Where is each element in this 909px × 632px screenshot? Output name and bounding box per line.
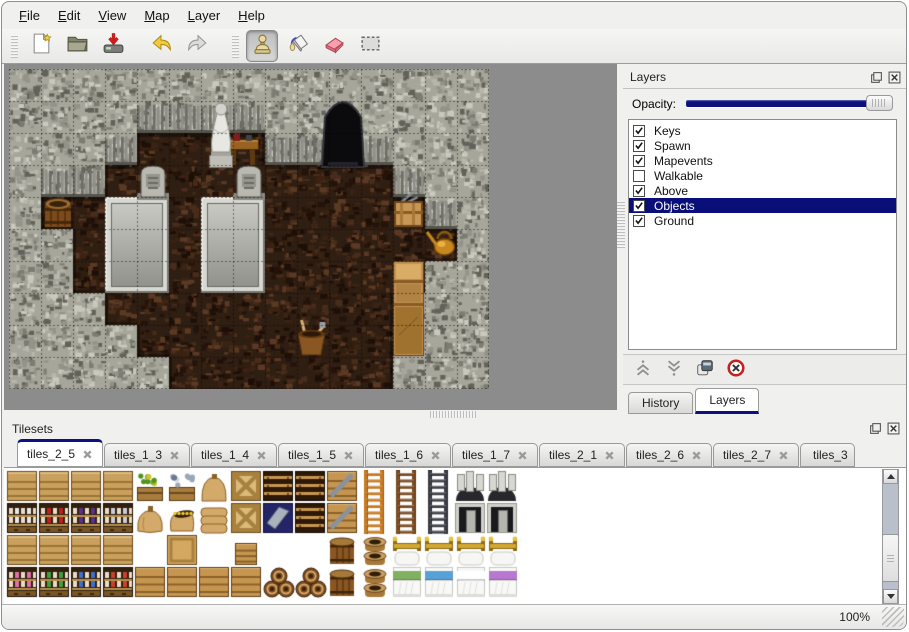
close-tab-icon[interactable] (430, 450, 441, 461)
layer-name: Mapevents (654, 154, 713, 168)
layer-name: Spawn (654, 139, 691, 153)
up-arrow-icon (887, 474, 895, 479)
duplicate-layer-icon (695, 358, 715, 381)
new-file-icon (29, 31, 54, 61)
close-tab-icon[interactable] (82, 449, 93, 460)
save-file-button[interactable] (97, 30, 129, 62)
tileset-tab-label: tiles_2_6 (636, 448, 684, 462)
open-file-icon (65, 31, 90, 61)
tileset-canvas[interactable] (6, 470, 552, 600)
tileset-tab-label: tiles_3 (813, 448, 848, 462)
tileset-tab-tiles_1_4[interactable]: tiles_1_4 (191, 443, 277, 467)
tileset-tab-label: tiles_1_4 (201, 448, 249, 462)
tileset-tab-tiles_3[interactable]: tiles_3 (800, 443, 855, 467)
move-layer-up-icon (633, 358, 653, 381)
tilesets-panel-titlebar: Tilesets (4, 418, 907, 439)
tileset-tab-tiles_2_5[interactable]: tiles_2_5 (17, 439, 103, 467)
layer-row-objects[interactable]: Objects (629, 198, 896, 213)
layer-visibility-checkbox[interactable] (633, 140, 645, 152)
horizontal-splitter[interactable] (430, 411, 476, 418)
undo-button[interactable] (145, 30, 177, 62)
close-tab-icon[interactable] (343, 450, 354, 461)
scrollbar-thumb[interactable] (882, 534, 899, 582)
layer-name: Above (654, 184, 688, 198)
layer-name: Ground (654, 214, 694, 228)
tileset-tab-tiles_1_7[interactable]: tiles_1_7 (452, 443, 538, 467)
panel-tabs: HistoryLayers (623, 386, 907, 414)
layer-row-ground[interactable]: Ground (629, 213, 896, 228)
tab-history[interactable]: History (628, 392, 693, 414)
tileset-tab-label: tiles_1_5 (288, 448, 336, 462)
undo-icon (149, 31, 174, 61)
layer-name: Objects (654, 199, 695, 213)
toolbar (2, 29, 906, 64)
close-tab-icon[interactable] (517, 450, 528, 461)
scroll-up-button[interactable] (883, 469, 898, 484)
close-tab-icon[interactable] (691, 450, 702, 461)
layer-name: Keys (654, 124, 681, 138)
close-tab-icon[interactable] (256, 450, 267, 461)
layer-visibility-checkbox[interactable] (633, 215, 645, 227)
menu-map[interactable]: Map (135, 5, 178, 26)
eraser-tool-icon (322, 31, 347, 61)
redo-icon (185, 31, 210, 61)
open-file-button[interactable] (61, 30, 93, 62)
layers-panel-titlebar: Layers (623, 66, 907, 89)
opacity-slider-handle[interactable] (866, 95, 893, 111)
close-tab-icon[interactable] (169, 450, 180, 461)
float-panel-icon[interactable] (870, 71, 883, 84)
tileset-tab-tiles_1_3[interactable]: tiles_1_3 (104, 443, 190, 467)
close-panel-icon[interactable] (887, 422, 900, 435)
tileset-tab-label: tiles_1_3 (114, 448, 162, 462)
tileset-tab-label: tiles_2_5 (27, 447, 75, 461)
redo-button[interactable] (181, 30, 213, 62)
tab-layers[interactable]: Layers (695, 388, 759, 414)
float-panel-icon[interactable] (869, 422, 882, 435)
tileset-tab-label: tiles_1_6 (375, 448, 423, 462)
stamp-tool-button[interactable] (246, 30, 278, 62)
app-window: FileEditViewMapLayerHelp Layers Opacity:… (1, 1, 907, 630)
tilesets-panel: Tilesets tiles_2_5tiles_1_3tiles_1_4tile… (4, 418, 907, 605)
new-file-button[interactable] (25, 30, 57, 62)
menu-file[interactable]: File (10, 5, 49, 26)
tileset-tab-tiles_1_6[interactable]: tiles_1_6 (365, 443, 451, 467)
eraser-tool-button[interactable] (318, 30, 350, 62)
layers-panel-title: Layers (630, 70, 870, 84)
stamp-tool-icon (250, 31, 275, 61)
tileset-scrollbar[interactable] (882, 469, 899, 604)
layer-list: KeysSpawnMapeventsWalkableAboveObjectsGr… (628, 119, 897, 350)
map-canvas[interactable] (9, 69, 489, 389)
move-layer-down-button[interactable] (662, 358, 686, 382)
tileset-tab-label: tiles_1_7 (462, 448, 510, 462)
map-viewport (4, 64, 617, 410)
close-tab-icon[interactable] (604, 450, 615, 461)
resize-grip[interactable] (882, 607, 904, 627)
menu-view[interactable]: View (89, 5, 135, 26)
layer-row-walkable[interactable]: Walkable (629, 168, 896, 183)
tileset-tab-label: tiles_2_7 (723, 448, 771, 462)
statusbar: 100% (2, 604, 906, 629)
layer-row-spawn[interactable]: Spawn (629, 138, 896, 153)
menu-help[interactable]: Help (229, 5, 274, 26)
layer-visibility-checkbox[interactable] (633, 155, 645, 167)
tileset-tab-tiles_1_5[interactable]: tiles_1_5 (278, 443, 364, 467)
move-layer-down-icon (664, 358, 684, 381)
scroll-down-button[interactable] (883, 589, 898, 604)
toolbar-grip[interactable] (232, 34, 239, 58)
down-arrow-icon (887, 594, 895, 599)
tileset-tab-tiles_2_1[interactable]: tiles_2_1 (539, 443, 625, 467)
menubar: FileEditViewMapLayerHelp (2, 2, 906, 29)
layer-row-above[interactable]: Above (629, 183, 896, 198)
delete-layer-button[interactable] (724, 358, 748, 382)
opacity-row: Opacity: (623, 90, 907, 117)
layer-visibility-checkbox[interactable] (633, 170, 645, 182)
duplicate-layer-button[interactable] (693, 358, 717, 382)
tileset-tab-tiles_2_7[interactable]: tiles_2_7 (713, 443, 799, 467)
menu-layer[interactable]: Layer (179, 5, 230, 26)
layer-visibility-checkbox[interactable] (633, 185, 645, 197)
toolbar-grip[interactable] (11, 34, 18, 58)
layer-visibility-checkbox[interactable] (633, 125, 645, 137)
layer-row-mapevents[interactable]: Mapevents (629, 153, 896, 168)
opacity-label: Opacity: (632, 97, 676, 111)
tileset-tab-label: tiles_2_1 (549, 448, 597, 462)
layer-actions-toolbar (623, 354, 907, 385)
tileset-tab-tiles_2_6[interactable]: tiles_2_6 (626, 443, 712, 467)
fill-tool-button[interactable] (282, 30, 314, 62)
tileset-content (4, 467, 907, 605)
menu-edit[interactable]: Edit (49, 5, 89, 26)
layer-name: Walkable (654, 169, 703, 183)
close-tab-icon[interactable] (778, 450, 789, 461)
opacity-slider[interactable] (686, 100, 890, 107)
select-tool-icon (358, 31, 383, 61)
move-layer-up-button[interactable] (631, 358, 655, 382)
select-tool-button[interactable] (354, 30, 386, 62)
layers-panel: Layers Opacity: KeysSpawnMapeventsWalkab… (623, 66, 907, 414)
layer-visibility-checkbox[interactable] (633, 200, 645, 212)
save-file-icon (101, 31, 126, 61)
delete-layer-icon (726, 358, 746, 381)
tilesets-panel-title: Tilesets (12, 422, 869, 436)
fill-tool-icon (286, 31, 311, 61)
close-panel-icon[interactable] (888, 71, 901, 84)
layer-row-keys[interactable]: Keys (629, 123, 896, 138)
tileset-tabs: tiles_2_5tiles_1_3tiles_1_4tiles_1_5tile… (4, 439, 907, 467)
zoom-level: 100% (839, 610, 870, 624)
